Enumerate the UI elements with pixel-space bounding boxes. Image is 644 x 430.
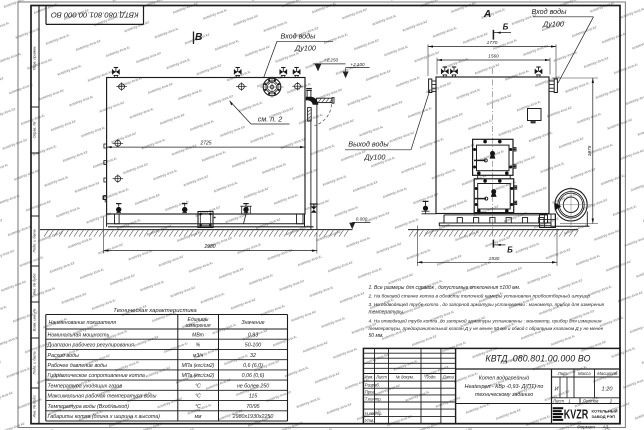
svg-text:Инв. № подл.: Инв. № подл. <box>33 395 37 418</box>
svg-text:Масштаб: Масштаб <box>597 371 618 376</box>
svg-text:Вход воды: Вход воды <box>281 32 317 41</box>
svg-text:0.000: 0.000 <box>356 217 368 222</box>
svg-text:Ду100: Ду100 <box>294 44 316 53</box>
svg-text:0,06 (0,6): 0,06 (0,6) <box>242 373 265 379</box>
svg-text:Единицы: Единицы <box>188 317 209 323</box>
svg-text:°С: °С <box>195 404 201 410</box>
svg-text:КВТД .080.801.00.000 ВО: КВТД .080.801.00.000 ВО <box>485 354 590 364</box>
svg-text:Формат: Формат <box>577 424 595 429</box>
svg-text:1770: 1770 <box>487 40 498 46</box>
svg-text:2725: 2725 <box>199 141 211 147</box>
svg-text:Подп.: Подп. <box>425 375 436 380</box>
svg-text:50-100: 50-100 <box>245 343 262 349</box>
svg-text:Гидравлическое сопротивление к: Гидравлическое сопротивление котла <box>48 373 145 379</box>
svg-text:Диапазон рабочего регулировани: Диапазон рабочего регулирования <box>47 343 135 349</box>
svg-text:1560: 1560 <box>488 54 499 60</box>
svg-text:50 мм.: 50 мм. <box>369 333 384 339</box>
svg-text:0,93: 0,93 <box>248 332 258 338</box>
svg-text:Б: Б <box>503 23 509 32</box>
svg-text:°С: °С <box>195 394 201 400</box>
svg-text:1:20: 1:20 <box>602 387 614 393</box>
svg-text:0,6 (6,0): 0,6 (6,0) <box>243 363 263 369</box>
svg-text:техническому заданию: техническому заданию <box>475 392 533 398</box>
svg-text:3. На подводящей трубе котла: 3. На подводящей трубе котла , до запорн… <box>369 301 605 307</box>
svg-text:№ докум.: № докум. <box>395 375 413 380</box>
svg-text:Температура воды (Вход/выход): Температура воды (Вход/выход) <box>48 404 130 410</box>
svg-text:Справ. №: Справ. № <box>33 122 37 139</box>
svg-text:1930: 1930 <box>489 256 500 262</box>
svg-text:Масса: Масса <box>578 371 591 376</box>
svg-text:Максимальная рабочая температу: Максимальная рабочая температура воды <box>48 394 157 400</box>
svg-text:Рабочее давление воды: Рабочее давление воды <box>48 363 107 369</box>
svg-text:Перв. примен.: Перв. примен. <box>33 46 37 71</box>
svg-text:Heatexpert - КВр -0,93- Д(ПТ): Heatexpert - КВр -0,93- Д(ПТ) по <box>465 384 544 390</box>
svg-text:м3/ч: м3/ч <box>193 353 204 359</box>
svg-text:Значение: Значение <box>241 320 264 326</box>
svg-text:Подп. и дата: Подп. и дата <box>33 229 37 252</box>
svg-text:МВт: МВт <box>192 332 204 338</box>
svg-text:Т.контр.: Т.контр. <box>365 397 382 402</box>
svg-text:1. Все размеры для справок ,: 1. Все размеры для справок , допустимые … <box>369 285 521 291</box>
svg-text:КОТЕЛЬНЫЙ: КОТЕЛЬНЫЙ <box>592 409 618 414</box>
svg-text:115: 115 <box>249 394 257 400</box>
svg-text:А: А <box>483 8 492 20</box>
svg-text:Ду100: Ду100 <box>542 20 564 29</box>
svg-text:Наименование показателя: Наименование показателя <box>49 320 117 326</box>
svg-text:Н.контр.: Н.контр. <box>365 411 383 416</box>
svg-text:4. На отводящей трубе котла ,: 4. На отводящей трубе котла ,до запорной… <box>369 318 602 324</box>
svg-text:Взам. инв. №: Взам. инв. № <box>33 309 37 332</box>
svg-text:32: 32 <box>250 353 256 359</box>
svg-text:МПа (кгс/см2): МПа (кгс/см2) <box>182 373 215 379</box>
svg-text:1975: 1975 <box>587 145 593 156</box>
svg-text:ЗАВОД РЭП: ЗАВОД РЭП <box>592 414 616 419</box>
svg-text:Б: Б <box>507 245 513 254</box>
svg-text:Выход воды: Выход воды <box>348 140 389 149</box>
svg-text:КВТД.080.801.00.000 ВО: КВТД.080.801.00.000 ВО <box>51 10 139 19</box>
svg-text:+2.100: +2.100 <box>350 62 365 67</box>
svg-text:Разраб.: Разраб. <box>365 383 380 388</box>
svg-text:Дата: Дата <box>442 375 455 380</box>
svg-text:Утв.: Утв. <box>365 418 375 423</box>
svg-text:температуры.: температуры. <box>369 310 405 316</box>
svg-text:измерения: измерения <box>185 323 210 329</box>
svg-text:Техническая характеристика: Техническая характеристика <box>113 308 197 314</box>
svg-text:В: В <box>195 31 203 43</box>
svg-text:И: И <box>554 387 558 393</box>
svg-text:Ду100: Ду100 <box>364 153 386 162</box>
svg-text:KVZR: KVZR <box>564 408 589 422</box>
svg-text:Габариты котла (длина х ширина: Габариты котла (длина х ширина х высота) <box>48 414 161 420</box>
svg-text:2. На боковой стенке котла в: 2. На боковой стенке котла в области топ… <box>368 293 591 300</box>
svg-text:70/95: 70/95 <box>246 404 259 410</box>
svg-text:Номинальная мощность: Номинальная мощность <box>48 332 110 338</box>
svg-text:Температура уходящих газов: Температура уходящих газов <box>48 383 123 389</box>
svg-text:МПа (кгс/см2): МПа (кгс/см2) <box>182 363 215 369</box>
svg-text:%: % <box>196 343 201 349</box>
svg-text:Инв. № дубл.: Инв. № дубл. <box>33 273 37 296</box>
svg-text:Лист: Лист <box>552 398 564 403</box>
svg-text:Лит.: Лит. <box>557 371 568 376</box>
svg-text:Расход воды: Расход воды <box>48 353 79 359</box>
svg-text:Котел водогрейный: Котел водогрейный <box>479 375 529 382</box>
svg-text:температуры, предохранительный: температуры, предохранительный клапан Д … <box>369 325 604 331</box>
svg-text:Изм.: Изм. <box>365 375 374 380</box>
svg-text:см. п. 2: см. п. 2 <box>258 114 282 123</box>
svg-text:°С: °С <box>195 383 201 389</box>
svg-text:2980: 2980 <box>203 244 215 250</box>
svg-text:Подп. и дата: Подп. и дата <box>33 351 37 374</box>
svg-text:Листов: Листов <box>582 398 599 403</box>
svg-text:Лист: Лист <box>375 375 387 380</box>
svg-text:не более 250: не более 250 <box>237 383 269 389</box>
svg-text:Пров.: Пров. <box>365 390 376 395</box>
svg-text:Вход воды: Вход воды <box>532 7 568 16</box>
svg-text:мм: мм <box>195 414 202 420</box>
svg-text:+2.250: +2.250 <box>324 58 339 63</box>
svg-text:А3: А3 <box>602 424 609 429</box>
svg-text:2980х1930х2250: 2980х1930х2250 <box>232 414 274 420</box>
